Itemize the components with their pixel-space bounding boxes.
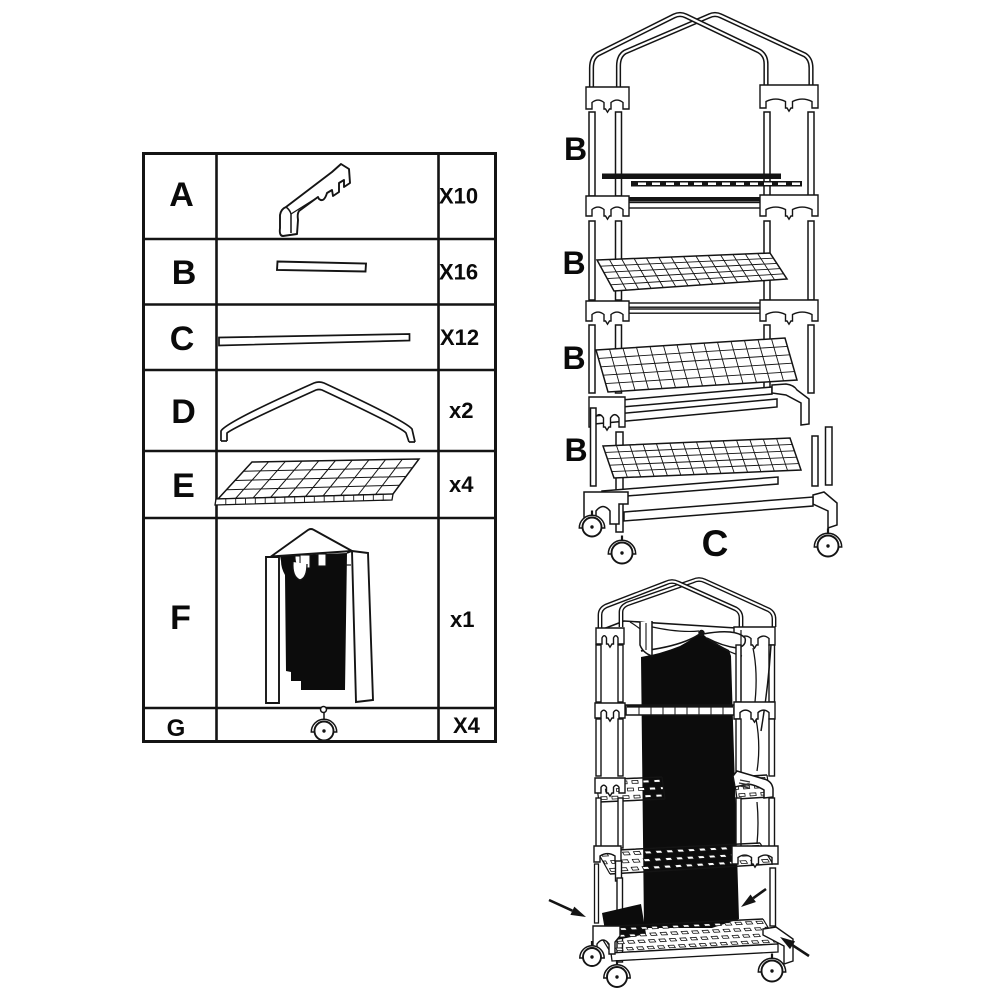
svg-text:x1: x1 [450, 607, 474, 632]
svg-text:C: C [702, 523, 729, 564]
svg-text:D: D [171, 393, 196, 431]
svg-text:B: B [564, 131, 587, 167]
svg-text:C: C [170, 320, 195, 358]
svg-text:X10: X10 [439, 184, 478, 209]
svg-text:B: B [562, 245, 585, 281]
svg-text:x4: x4 [449, 472, 474, 497]
svg-text:B: B [562, 340, 585, 376]
svg-text:X4: X4 [453, 713, 481, 738]
svg-text:x2: x2 [449, 398, 473, 423]
svg-text:X12: X12 [440, 325, 479, 350]
svg-text:B: B [564, 432, 587, 468]
svg-text:F: F [170, 599, 191, 637]
svg-text:X16: X16 [439, 260, 478, 285]
svg-text:A: A [169, 176, 194, 214]
svg-text:G: G [167, 715, 186, 742]
svg-text:E: E [172, 467, 195, 505]
svg-text:B: B [172, 254, 197, 292]
